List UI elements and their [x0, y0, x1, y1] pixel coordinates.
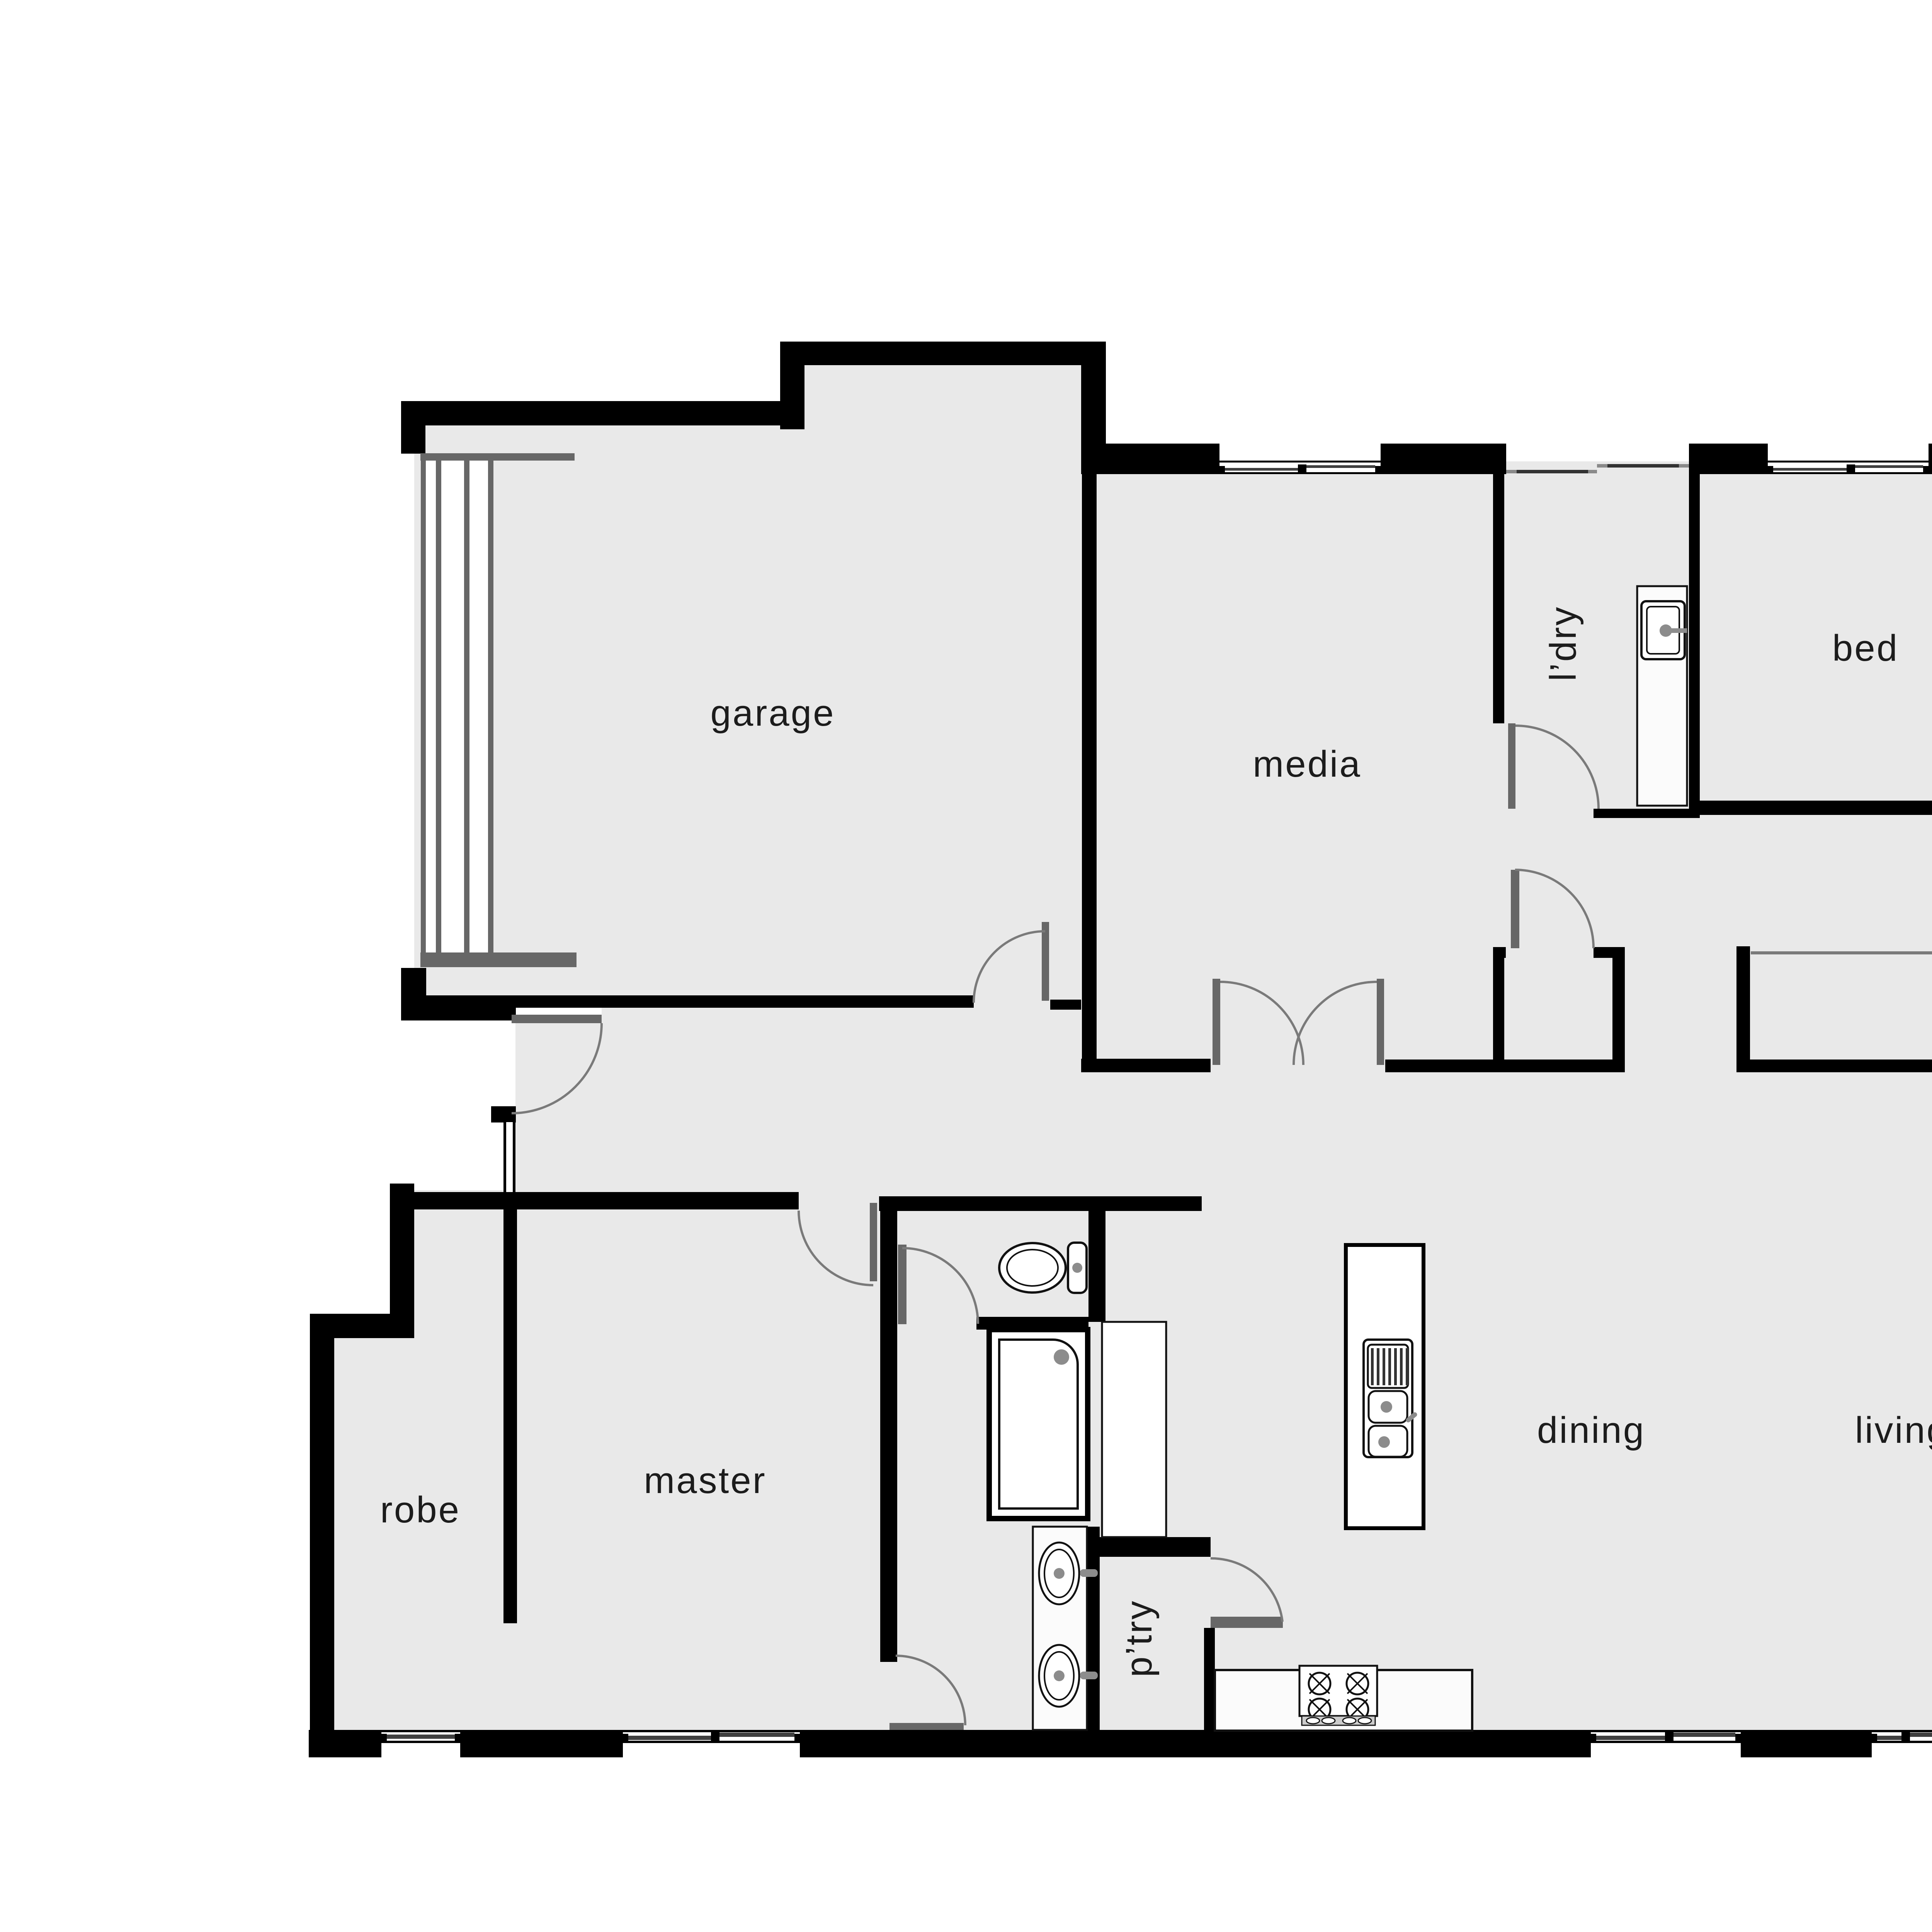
- svg-text:living: living: [1855, 1410, 1932, 1451]
- svg-text:media: media: [1253, 743, 1361, 785]
- svg-text:master: master: [644, 1460, 766, 1501]
- svg-text:p’try: p’try: [1118, 1599, 1160, 1677]
- svg-text:bed: bed: [1832, 628, 1899, 669]
- svg-text:garage: garage: [711, 692, 835, 734]
- svg-text:dining: dining: [1537, 1410, 1645, 1451]
- svg-text:l’dry: l’dry: [1543, 605, 1584, 681]
- svg-text:robe: robe: [380, 1489, 461, 1531]
